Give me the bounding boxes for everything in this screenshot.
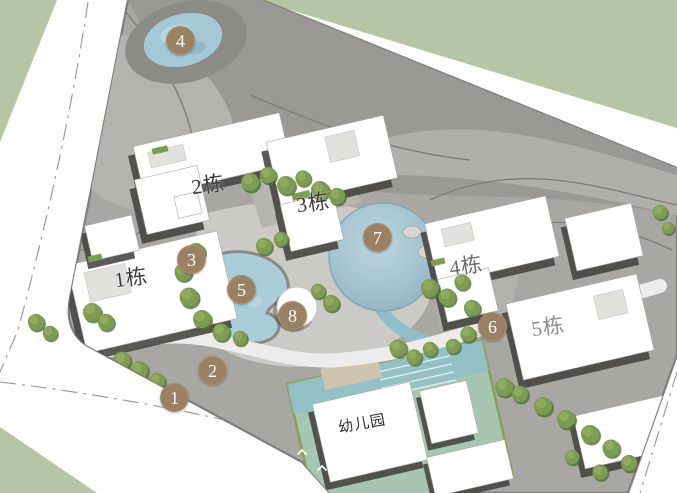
plan-marker-2[interactable]: 2 <box>198 356 227 385</box>
building-label-3: 3栋 <box>294 185 331 219</box>
tree-icon <box>28 314 46 332</box>
marker-number: 7 <box>373 229 382 247</box>
central-lake <box>329 203 437 311</box>
marker-number: 8 <box>288 307 297 325</box>
site-plan: 1 2 3 4 5 6 7 8 1栋 2栋 3栋 4栋 5栋 幼儿园 <box>0 0 677 493</box>
bird-icon <box>58 439 66 443</box>
marker-number: 2 <box>208 362 217 380</box>
building-label-5: 5栋 <box>529 309 566 343</box>
marker-number: 5 <box>237 281 246 299</box>
building-label-2: 2栋 <box>189 167 226 201</box>
building-label-1: 1栋 <box>112 260 149 294</box>
trees-outside <box>28 314 59 342</box>
plan-marker-8[interactable]: 8 <box>278 301 307 330</box>
grass-top-left <box>0 0 57 142</box>
plan-marker-5[interactable]: 5 <box>227 275 256 304</box>
bird-icons-road <box>58 439 66 443</box>
marker-number: 1 <box>170 389 179 407</box>
grass-bottom-left <box>0 427 97 493</box>
plan-marker-3[interactable]: 3 <box>177 245 206 274</box>
building-label-4: 4栋 <box>447 248 484 282</box>
marker-number: 6 <box>488 318 497 336</box>
tree-icon <box>43 326 59 342</box>
plan-marker-1[interactable]: 1 <box>160 383 189 412</box>
marker-number: 3 <box>187 251 196 269</box>
plan-marker-6[interactable]: 6 <box>478 312 507 341</box>
plan-marker-4[interactable]: 4 <box>166 26 195 55</box>
plan-marker-7[interactable]: 7 <box>363 223 392 252</box>
marker-number: 4 <box>176 32 185 50</box>
lake-seating-pod <box>403 226 421 238</box>
